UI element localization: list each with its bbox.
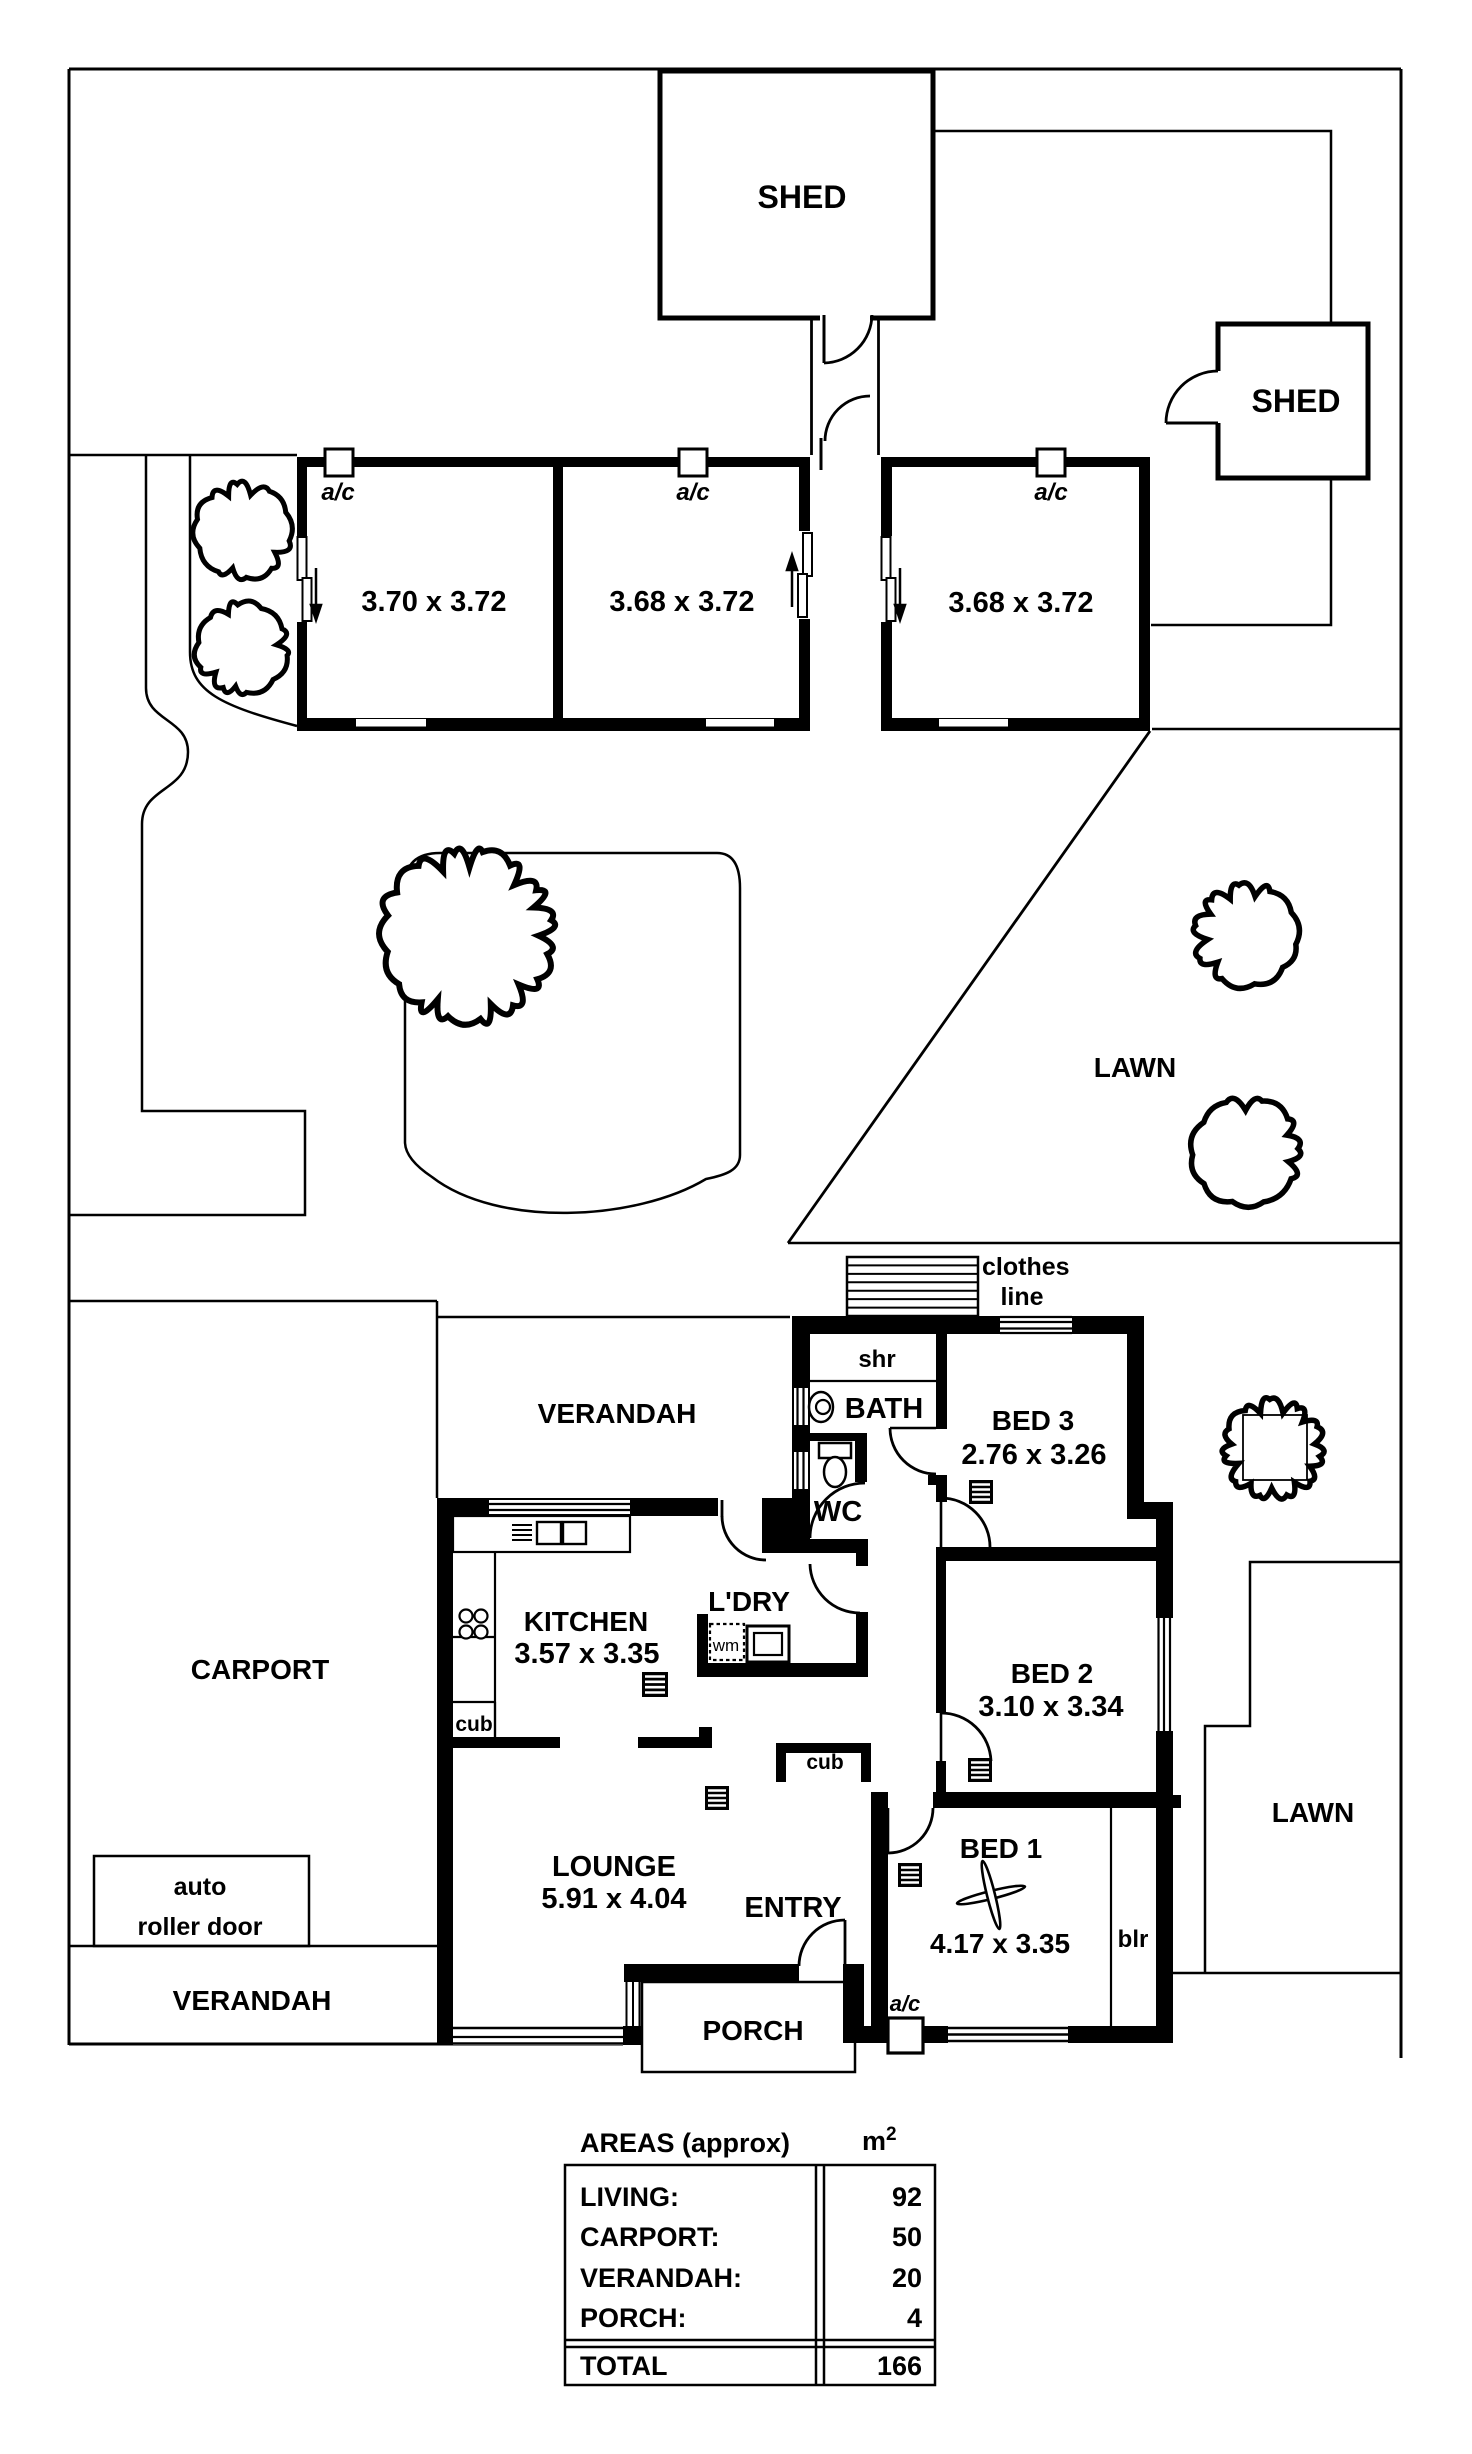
svg-text:L'DRY: L'DRY	[708, 1586, 790, 1617]
svg-text:blr: blr	[1118, 1926, 1149, 1953]
svg-text:2.76 x 3.26: 2.76 x 3.26	[961, 1439, 1106, 1471]
svg-text:LAWN: LAWN	[1094, 1052, 1176, 1083]
svg-text:roller door: roller door	[137, 1913, 262, 1941]
svg-text:SHED: SHED	[758, 179, 847, 215]
svg-text:3.10 x 3.34: 3.10 x 3.34	[978, 1691, 1123, 1723]
svg-text:a/c: a/c	[321, 479, 354, 506]
svg-text:92: 92	[892, 2182, 922, 2212]
svg-text:cub: cub	[455, 1713, 492, 1736]
svg-text:4.17 x 3.35: 4.17 x 3.35	[930, 1928, 1070, 1959]
svg-text:4: 4	[907, 2303, 922, 2333]
svg-text:ENTRY: ENTRY	[744, 1892, 841, 1924]
svg-text:BED 3: BED 3	[992, 1405, 1074, 1436]
svg-text:BATH: BATH	[845, 1393, 923, 1425]
svg-text:VERANDAH:: VERANDAH:	[580, 2263, 742, 2293]
svg-text:a/c: a/c	[1034, 479, 1067, 506]
svg-text:line: line	[1000, 1283, 1043, 1311]
svg-text:LOUNGE: LOUNGE	[552, 1851, 676, 1883]
svg-text:CARPORT:: CARPORT:	[580, 2222, 720, 2252]
svg-text:3.68 x 3.72: 3.68 x 3.72	[609, 586, 754, 618]
svg-text:clothes: clothes	[982, 1253, 1070, 1281]
svg-text:3.57 x 3.35: 3.57 x 3.35	[514, 1638, 659, 1670]
svg-text:20: 20	[892, 2263, 922, 2293]
svg-text:SHED: SHED	[1252, 383, 1341, 419]
svg-text:3.68 x 3.72: 3.68 x 3.72	[948, 587, 1093, 619]
svg-text:166: 166	[877, 2351, 922, 2381]
svg-text:VERANDAH: VERANDAH	[538, 1398, 697, 1429]
svg-text:cub: cub	[806, 1751, 843, 1774]
svg-text:shr: shr	[858, 1346, 895, 1373]
svg-text:a/c: a/c	[890, 1991, 921, 2016]
svg-text:wm: wm	[712, 1636, 739, 1655]
svg-text:WC: WC	[814, 1496, 862, 1528]
svg-text:3.70 x 3.72: 3.70 x 3.72	[361, 586, 506, 618]
svg-text:PORCH:: PORCH:	[580, 2303, 687, 2333]
svg-text:5.91 x 4.04: 5.91 x 4.04	[541, 1883, 686, 1915]
svg-text:TOTAL: TOTAL	[580, 2351, 668, 2381]
svg-text:VERANDAH: VERANDAH	[173, 1985, 332, 2016]
svg-text:KITCHEN: KITCHEN	[524, 1606, 648, 1637]
svg-text:BED 1: BED 1	[960, 1833, 1042, 1864]
svg-text:auto: auto	[174, 1873, 227, 1901]
svg-text:CARPORT: CARPORT	[191, 1654, 329, 1685]
svg-text:PORCH: PORCH	[702, 2015, 803, 2046]
svg-text:a/c: a/c	[676, 479, 709, 506]
svg-text:LAWN: LAWN	[1272, 1797, 1354, 1828]
svg-text:BED 2: BED 2	[1011, 1658, 1093, 1689]
svg-text:LIVING:: LIVING:	[580, 2182, 679, 2212]
svg-text:50: 50	[892, 2222, 922, 2252]
svg-text:AREAS (approx): AREAS (approx)	[580, 2128, 790, 2158]
